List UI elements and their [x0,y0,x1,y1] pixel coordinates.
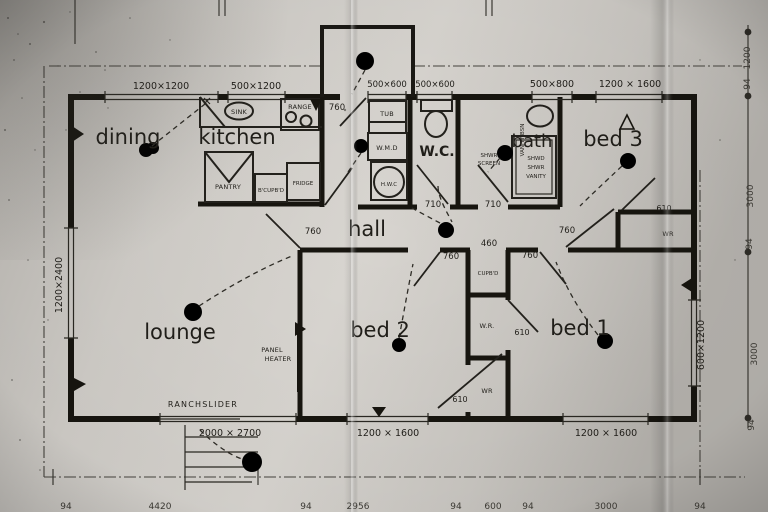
floor-plan-photo: dining kitchen W.C. bath bed 3 hall loun… [0,0,768,512]
photo-vignette [0,0,768,512]
floor-plan-svg: dining kitchen W.C. bath bed 3 hall loun… [0,0,768,512]
